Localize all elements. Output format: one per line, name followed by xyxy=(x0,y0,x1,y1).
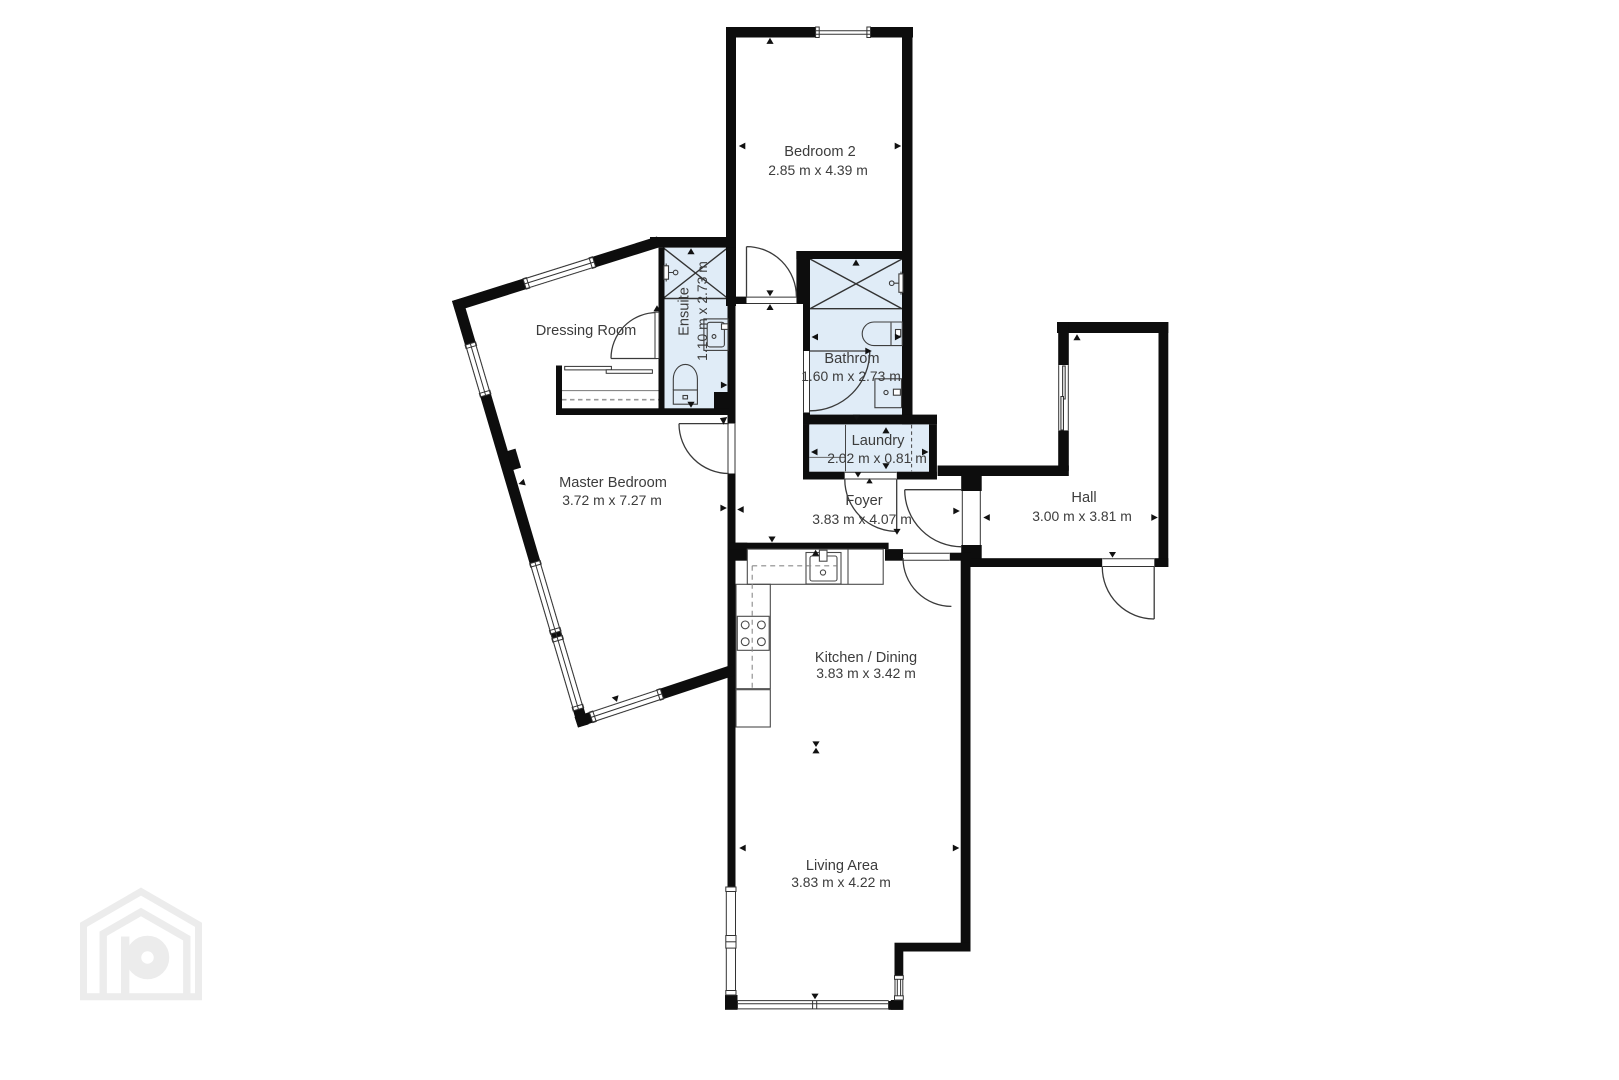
svg-text:1.60 m x 2.73 m: 1.60 m x 2.73 m xyxy=(801,368,901,384)
svg-text:3.72 m x 7.27 m: 3.72 m x 7.27 m xyxy=(562,492,662,508)
svg-text:Laundry: Laundry xyxy=(852,433,905,449)
svg-text:3.83 m x 3.42 m: 3.83 m x 3.42 m xyxy=(816,665,916,681)
svg-text:Foyer: Foyer xyxy=(845,493,882,509)
svg-text:Dressing Room: Dressing Room xyxy=(536,323,637,339)
svg-text:Hall: Hall xyxy=(1071,490,1096,506)
svg-text:Master Bedroom: Master Bedroom xyxy=(559,475,667,491)
svg-text:Kitchen / Dining: Kitchen / Dining xyxy=(815,650,917,666)
svg-text:Ensuite: Ensuite xyxy=(677,287,693,336)
svg-text:Bathrom: Bathrom xyxy=(824,351,879,367)
svg-text:Bedroom 2: Bedroom 2 xyxy=(784,144,855,160)
svg-text:2.85 m x 4.39 m: 2.85 m x 4.39 m xyxy=(768,162,868,178)
svg-text:3.83 m x 4.22 m: 3.83 m x 4.22 m xyxy=(791,874,891,890)
svg-text:3.83 m x 4.07 m: 3.83 m x 4.07 m xyxy=(812,511,912,527)
svg-text:1.10 m x 2.73 m: 1.10 m x 2.73 m xyxy=(694,261,710,361)
svg-text:2.02 m x 0.81 m: 2.02 m x 0.81 m xyxy=(827,450,927,466)
svg-text:3.00 m x 3.81 m: 3.00 m x 3.81 m xyxy=(1032,508,1132,524)
svg-text:Living Area: Living Area xyxy=(806,858,879,874)
